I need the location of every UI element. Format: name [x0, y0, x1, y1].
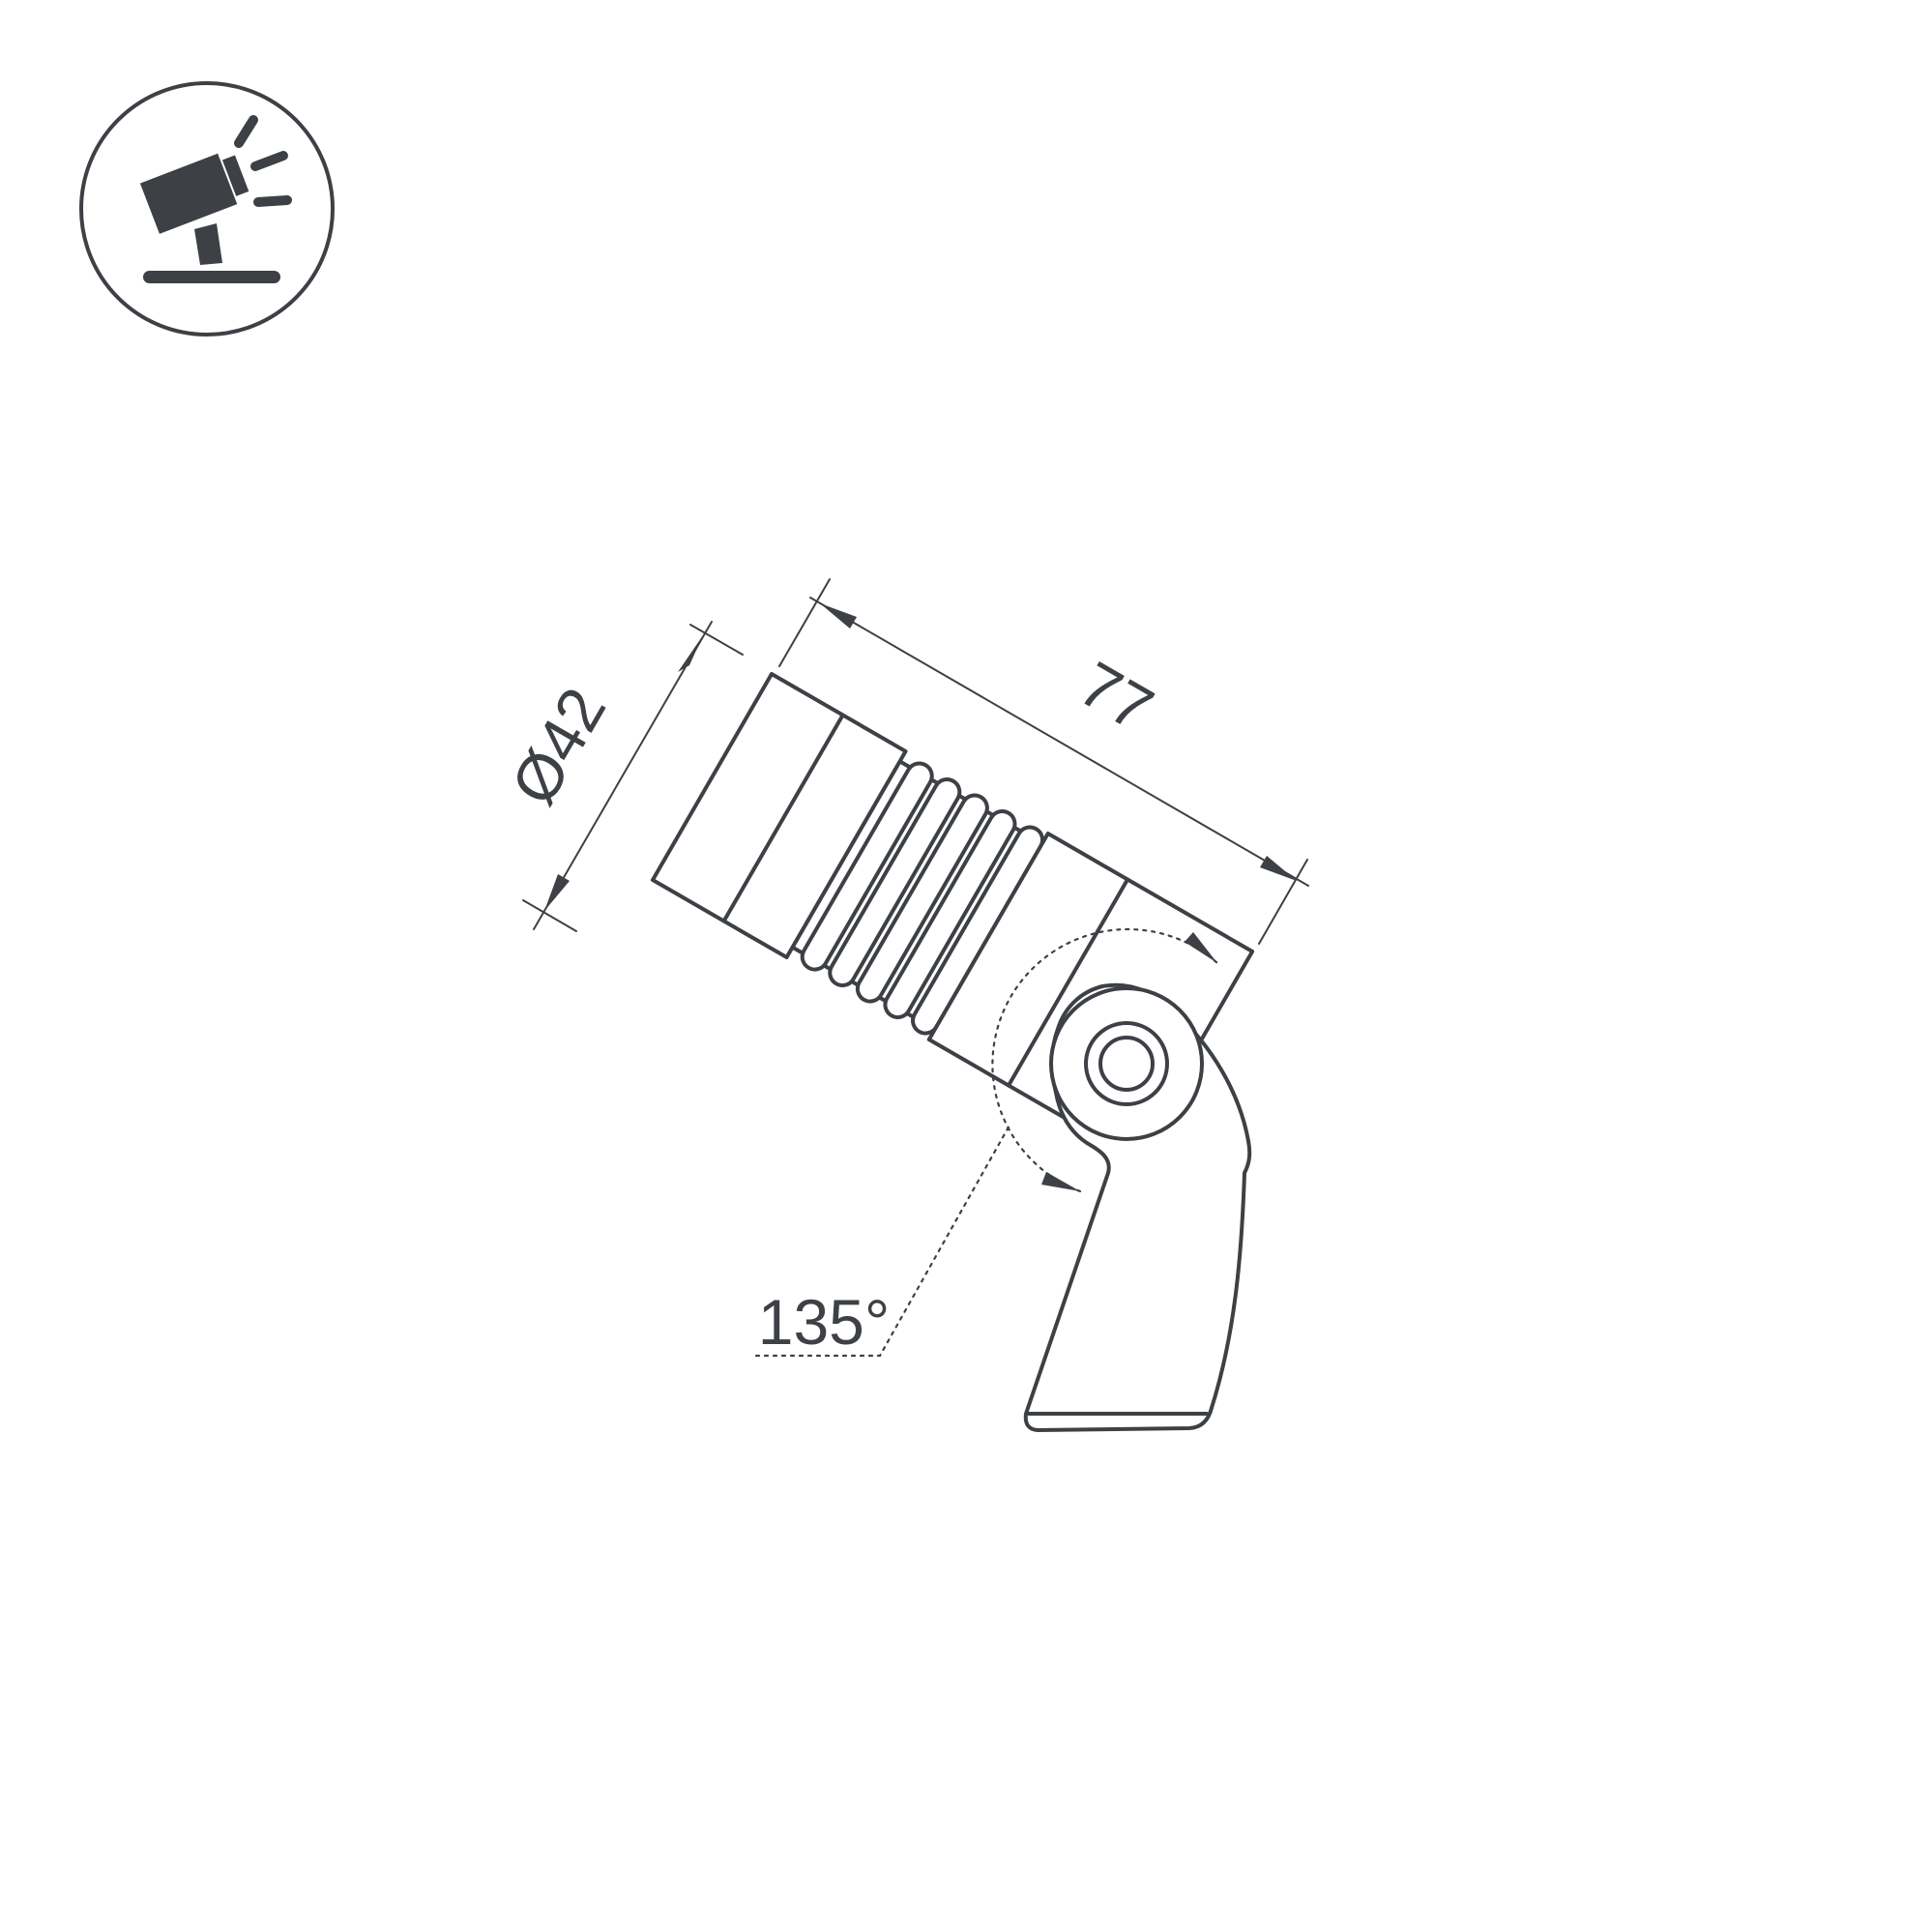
diameter-ext-line-upper [690, 625, 743, 655]
length-arrow-left [820, 603, 857, 629]
icon-ray-3 [258, 200, 287, 202]
angle-dimension-label: 135° [758, 1286, 891, 1358]
mounting-bracket [1026, 985, 1249, 1430]
diameter-arrow-lower [544, 874, 570, 911]
diameter-dimension-label: Ø42 [497, 676, 619, 816]
length-dimension-label: 77 [1068, 648, 1165, 746]
technical-drawing: Ø42 77 135° [0, 0, 1932, 1932]
page: Ø42 77 135° [0, 0, 1932, 1932]
icon-ground-bar [143, 271, 280, 283]
adjustable-spotlight-icon [81, 83, 333, 335]
diameter-arrow-upper [678, 635, 703, 672]
rotation-arrow-lower [1041, 1172, 1080, 1191]
length-arrow-right [1260, 856, 1297, 881]
diameter-ext-line-lower [523, 900, 576, 931]
pivot-bolt-inner [1100, 1038, 1153, 1090]
length-ext-line-left [779, 579, 830, 666]
